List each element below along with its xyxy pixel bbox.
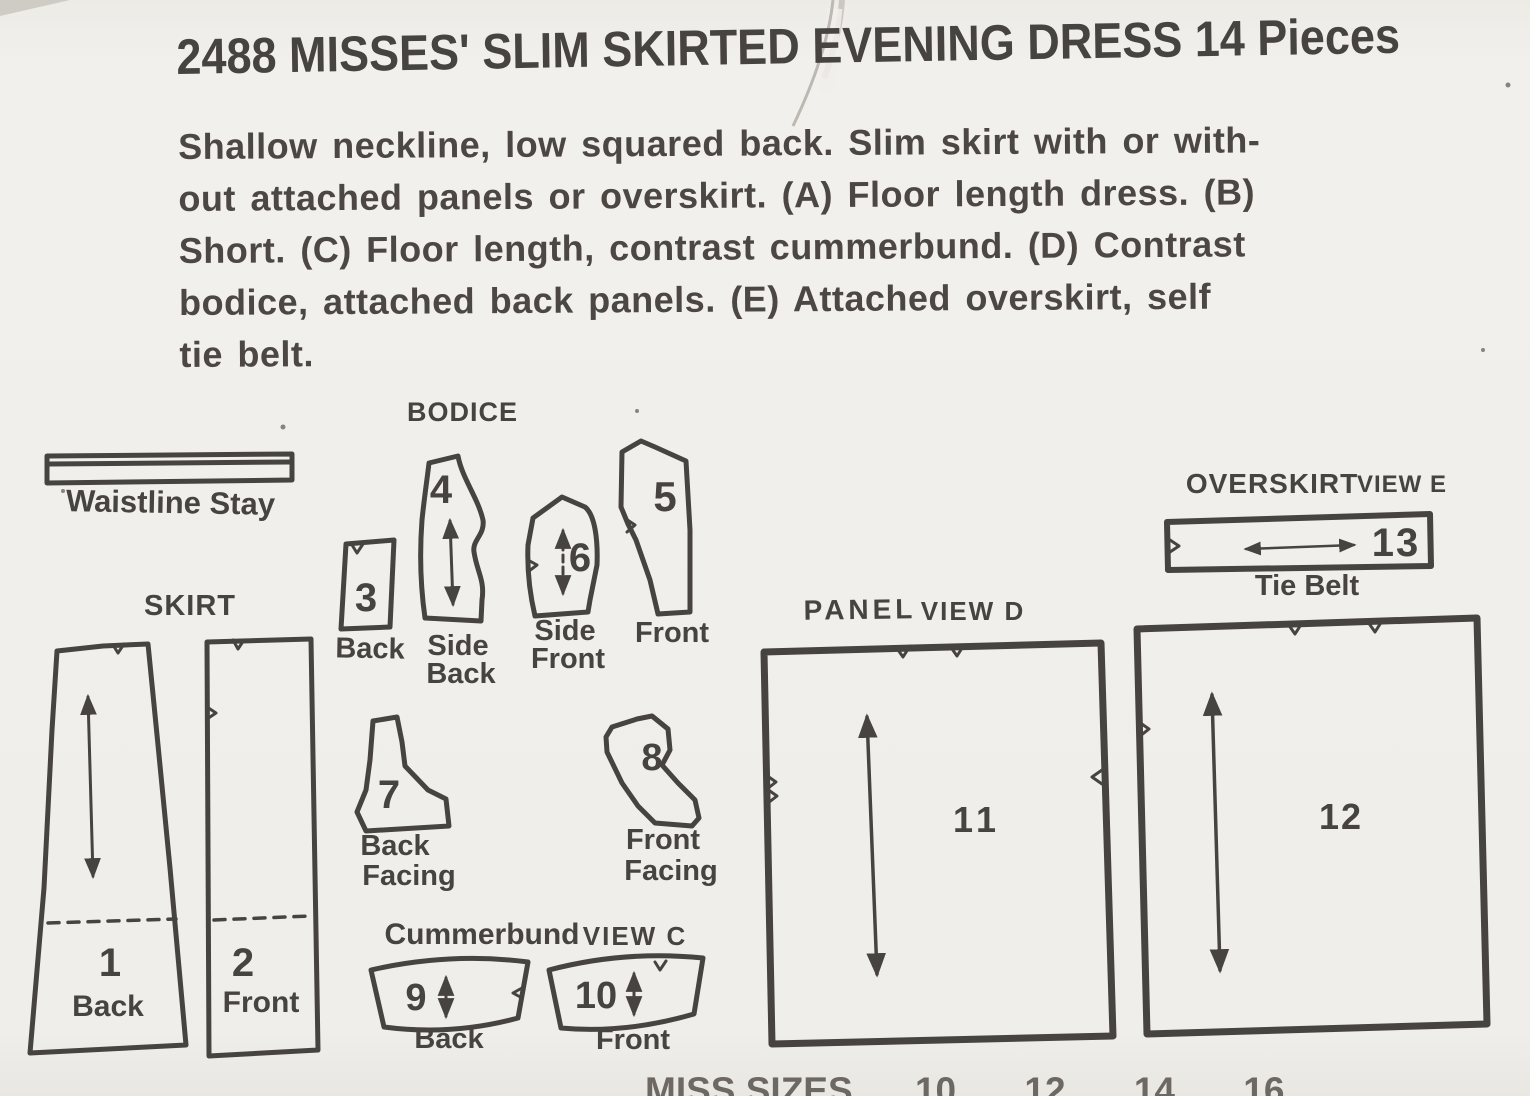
footer-size-value: 10 (915, 1070, 956, 1096)
heading-overskirt: OVERSKIRT (1186, 468, 1358, 500)
piece-13-grainline-arrow (1246, 545, 1354, 549)
heading-bodice: BODICE (407, 397, 518, 428)
piece-9-outline (371, 958, 528, 1030)
piece-4-number: 4 (430, 468, 452, 513)
piece-2-label: Front (223, 986, 300, 1020)
heading-panel-view: VIEW D (921, 596, 1025, 627)
piece-7-label-line2: Facing (362, 860, 455, 893)
piece-10-notch (655, 961, 666, 970)
piece-11-right-notch (1092, 770, 1102, 784)
pattern-sheet: 2488 MISSES' SLIM SKIRTED EVENING DRESS … (0, 0, 1530, 1096)
waistline-stay-top-band (49, 462, 290, 464)
heading-waistline-stay: Waistline Stay (66, 483, 276, 523)
piece-2-number: 2 (232, 941, 254, 986)
piece-11-number: 11 (953, 799, 1001, 841)
description-line: bodice, attached back panels. (E) Attach… (179, 275, 1262, 334)
piece-13-label: Tie Belt (1255, 570, 1359, 603)
heading-skirt: SKIRT (144, 590, 236, 623)
heading-cummerbund-view: VIEW C (583, 921, 687, 952)
footer-size-value: 14 (1134, 1070, 1175, 1096)
footer-size-value: 12 (1024, 1070, 1065, 1096)
piece-7-label-line1: Back (360, 830, 429, 863)
piece-9-label: Back (414, 1023, 483, 1056)
piece-8-number: 8 (641, 737, 662, 780)
piece-3-label: Back (335, 632, 405, 666)
description-line: Shallow neckline, low squared back. Slim… (178, 119, 1261, 178)
piece-5-number: 5 (653, 473, 676, 521)
piece-5-label: Front (635, 617, 709, 650)
description-line: tie belt. (179, 327, 1262, 386)
heading-cummerbund: Cummerbund (385, 918, 580, 952)
piece-12-grainline-arrow (1212, 695, 1220, 970)
piece-6-number: 6 (569, 536, 591, 581)
piece-8-label-line1: Front (626, 824, 700, 857)
description-line: Short. (C) Floor length, contrast cummer… (179, 223, 1262, 282)
footer-sizes-row: MISS SIZES 10 12 14 16 (645, 1070, 1284, 1096)
piece-9-number: 9 (405, 977, 426, 1020)
piece-2-hemline (214, 916, 310, 920)
piece-7-outline (357, 717, 449, 831)
piece-12-outline (1137, 618, 1487, 1034)
piece-3-number: 3 (355, 576, 377, 621)
piece-13-number: 13 (1372, 521, 1421, 566)
piece-7-number: 7 (378, 773, 400, 818)
description-line: out attached panels or overskirt. (A) Fl… (178, 171, 1261, 230)
piece-1-label: Back (72, 990, 144, 1024)
piece-11-outline (764, 643, 1113, 1044)
piece-10-number: 10 (575, 975, 617, 1018)
footer-size-value: 16 (1243, 1070, 1284, 1096)
waistline-stay-outline (47, 454, 292, 483)
piece-11-grainline-arrow (867, 717, 877, 974)
piece-1-grainline-arrow (88, 697, 93, 876)
piece-6-label-line2: Front (531, 643, 605, 676)
piece-12-number: 12 (1319, 796, 1363, 838)
piece-1-hemline (48, 919, 176, 923)
piece-8-label-line2: Facing (624, 855, 717, 888)
piece-4-grainline-arrow (450, 521, 453, 604)
description-paragraph: Shallow neckline, low squared back. Slim… (178, 119, 1262, 386)
piece-13-notch (1170, 540, 1179, 552)
piece-10-outline (549, 956, 703, 1030)
piece-10-label: Front (596, 1024, 670, 1057)
heading-panel: PANEL (803, 593, 916, 627)
piece-1-number: 1 (99, 941, 121, 986)
scan-corner-smudge (0, 0, 70, 16)
heading-overskirt-view: VIEW E (1357, 471, 1447, 499)
piece-4-label-line2: Back (426, 658, 495, 691)
footer-sizes-label: MISS SIZES (645, 1070, 853, 1096)
